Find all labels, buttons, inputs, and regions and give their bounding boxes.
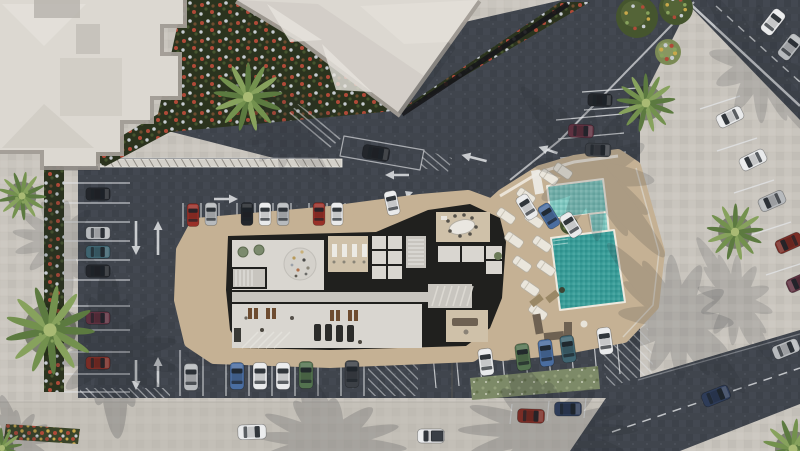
- room-locker-3: [372, 251, 386, 264]
- lobby-plant-1: [238, 247, 248, 257]
- gym-rack: [234, 328, 241, 342]
- car-top-1: [187, 204, 199, 227]
- car-street-1: [517, 409, 544, 424]
- car-left-1: [86, 188, 110, 201]
- lounge-coffee-table: [464, 330, 469, 335]
- car-botB-3: [537, 339, 554, 368]
- roofA-shadow: [44, 166, 98, 171]
- car-left-4: [86, 265, 110, 278]
- room-locker-2: [388, 236, 402, 249]
- roofA-block-top: [34, 0, 80, 18]
- car-left-5: [86, 312, 110, 325]
- room-small-2: [462, 246, 484, 262]
- car-left-2: [86, 227, 110, 240]
- car-left-6: [86, 357, 110, 370]
- car-botA-3: [253, 363, 267, 390]
- car-top-6: [313, 203, 325, 226]
- car-driving-bottom: [238, 424, 267, 440]
- room-stair-lobby: [232, 268, 266, 288]
- car-ne-1: [568, 124, 594, 138]
- lobby-plant-2: [254, 245, 264, 255]
- pool-main: [551, 230, 625, 310]
- deck-plant: [559, 287, 565, 293]
- car-left-3: [86, 246, 110, 259]
- car-botB-2: [514, 343, 531, 372]
- stair-main-treads: [408, 240, 424, 264]
- car-top-3: [241, 203, 253, 226]
- car-botA-2: [230, 363, 244, 390]
- truck-street: [418, 429, 445, 443]
- roofA-facet-face: [60, 58, 122, 116]
- aerial-site-plan-render: [0, 0, 800, 451]
- room-locker-4: [388, 251, 402, 264]
- lounge-sofa-main: [452, 318, 478, 326]
- deck-side-table: [581, 321, 588, 328]
- lobby-rug: [284, 248, 316, 280]
- room-locker-5: [372, 266, 386, 279]
- car-botB-1: [477, 348, 494, 377]
- car-top-2: [205, 203, 217, 226]
- dining-sideboard: [441, 216, 447, 220]
- site-plan-canvas: [0, 0, 800, 451]
- planter-bush-3: [655, 39, 681, 65]
- room-locker-6: [388, 266, 402, 279]
- room-east-2: [486, 261, 502, 274]
- car-ne-2: [585, 143, 611, 157]
- car-street-2: [555, 402, 582, 416]
- car-top-7: [331, 203, 343, 226]
- room-locker-1: [372, 236, 386, 249]
- car-botA-5: [299, 362, 313, 389]
- car-botA-4: [276, 363, 290, 390]
- car-botA-1: [184, 364, 198, 391]
- car-botA-6: [345, 361, 359, 388]
- roofA-block-mid: [76, 24, 100, 54]
- corridor: [232, 292, 428, 302]
- wing-plant: [494, 252, 502, 260]
- room-small-1: [438, 246, 460, 262]
- car-top-4: [259, 203, 271, 226]
- car-top-5: [277, 203, 289, 226]
- car-ne-3: [588, 93, 613, 106]
